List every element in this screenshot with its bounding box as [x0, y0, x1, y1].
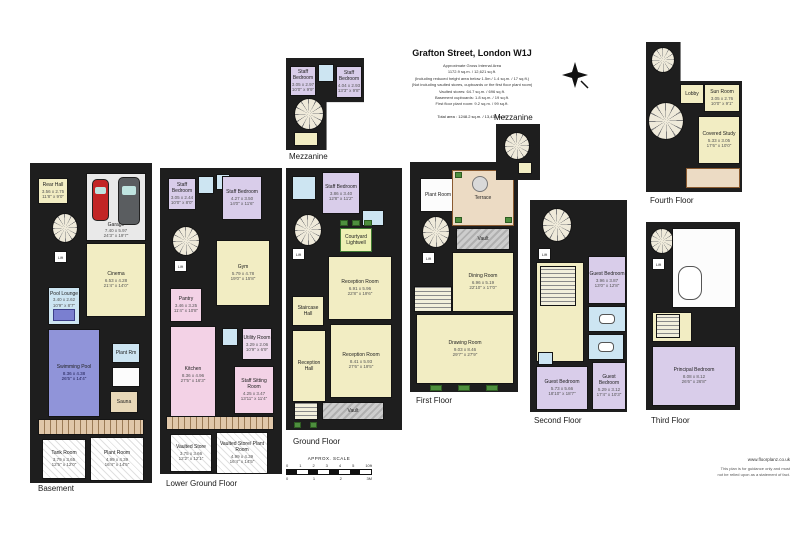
roof-terrace	[686, 168, 740, 188]
page-title: Grafton Street, London W1J	[393, 48, 551, 58]
floor-label-third: Third Floor	[651, 416, 690, 425]
room-vault: Vault	[456, 228, 510, 250]
room-covered-study: Covered Study5.33 x 3.0517'6" x 10'0"	[698, 116, 740, 164]
planter-circle	[472, 176, 488, 192]
room-bathroom	[292, 176, 316, 200]
lgf-corridor-steps	[166, 416, 274, 430]
bathtub	[678, 266, 702, 300]
floor-label-mezzanine-lower: Mezzanine	[289, 152, 328, 161]
room-tank-room: Tank Room3.79 x 3.6512'5" x 12'0"	[42, 439, 86, 479]
room-reception-2: Reception Room8.41 x 5.9327'6" x 19'5"	[330, 324, 392, 398]
title-block: Grafton Street, London W1J Approximate G…	[393, 48, 551, 119]
floorplan-mezzanine-upper	[496, 124, 540, 180]
room-staff-bedroom: Staff Bedroom3.86 x 3.4012'8" x 11'2"	[322, 172, 360, 214]
floor-label-ground: Ground Floor	[293, 437, 340, 446]
lift: Lift	[652, 258, 665, 270]
floorplan-first: Plant Room Terrace Vault Lift Dining Roo…	[410, 162, 518, 392]
area-line: (Not including vaulted stores, cupboards…	[393, 82, 551, 88]
spiral-staircase	[52, 213, 78, 243]
planter	[352, 220, 360, 226]
floor-label-basement: Basement	[38, 484, 74, 493]
scale-bar: APPROX. SCALE 0 1 2 3 4 5 10ft 0 1 2 3M	[286, 456, 372, 481]
scale-bar-title: APPROX. SCALE	[286, 456, 372, 461]
room-plant-room: Plant Room4.99 x 4.3916'4" x 14'5"	[90, 437, 144, 481]
scale-feet-row: 0 1 2 3 4 5 10ft	[286, 463, 372, 468]
floorplan-third: Lift Principal Bedroom8.08 x 8.1226'6" x…	[646, 222, 740, 410]
lift: Lift	[174, 260, 187, 272]
room-shower	[222, 328, 238, 346]
floor-label-second: Second Floor	[534, 416, 582, 425]
scale-metre-row: 0 1 2 3M	[286, 476, 372, 481]
lift: Lift	[292, 248, 305, 260]
planter	[364, 220, 372, 226]
room-plant-room: Plant Room	[420, 178, 456, 212]
lift: Lift	[54, 251, 67, 263]
room-sauna: Sauna	[110, 391, 138, 413]
room-staircase-hall: Staircase Hall	[292, 296, 324, 326]
car-windshield	[95, 187, 106, 194]
room-kitchen: Kitchen8.36 x 4.9627'5" x 16'3"	[170, 326, 216, 424]
floor-label-first: First Floor	[416, 396, 452, 405]
lift: Lift	[538, 248, 551, 260]
room-bathroom	[318, 64, 334, 82]
spiral-staircase	[172, 226, 200, 256]
front-steps	[294, 402, 318, 420]
floor-label-mezzanine-upper: Mezzanine	[494, 113, 533, 122]
floorplan-sheet: Grafton Street, London W1J Approximate G…	[0, 0, 800, 533]
room-courtyard-lightwell: Courtyard Lightwell	[340, 228, 372, 252]
website-link: www.floorplanz.co.uk	[632, 457, 790, 462]
room-guest-bedroom-2: Guest Bedroom5.73 x 5.6618'10" x 18'7"	[536, 366, 588, 410]
floorplan-mezzanine-lower: Staff Bedroom3.05 x 2.9710'0" x 9'9" Sta…	[286, 58, 364, 150]
plunge-pool	[53, 309, 75, 321]
scale-bar-rule	[286, 469, 372, 475]
bathtub	[598, 342, 614, 352]
room-vaulted-store: Vaulted Store3.75 x 3.6612'2" x 12'1"	[170, 434, 212, 472]
room-vaulted-store-plant: Vaulted Store/ Plant Room4.99 x 4.3916'4…	[216, 432, 268, 474]
area-line: First floor plant room: 9.2 sq.m. / 99 s…	[393, 101, 551, 107]
room-shower	[538, 352, 553, 365]
main-staircase	[414, 286, 452, 312]
room-cinema: Cinema6.53 x 4.2821'4" x 14'0"	[86, 243, 146, 317]
spiral-staircase	[651, 47, 675, 73]
room-swimming-pool: Swimming Pool8.36 x 4.3826'5" x 14'4"	[48, 329, 100, 417]
main-staircase	[540, 266, 576, 306]
floor-label-lower-ground: Lower Ground Floor	[166, 479, 237, 488]
grand-spiral-staircase	[648, 102, 684, 140]
car-grey	[118, 177, 140, 225]
room-guest-bedroom-3: Guest Bedroom5.29 x 3.1217'4" x 10'3"	[592, 362, 626, 410]
room-staff-bedroom: Staff Bedroom3.05 x 2.4410'0" x 8'0"	[168, 178, 196, 210]
room-gym: Gym5.79 x 4.7819'0" x 15'8"	[216, 240, 270, 306]
spiral-staircase	[504, 132, 530, 160]
room-sun-room: Sun Room3.05 x 2.7610'0" x 9'1"	[704, 84, 740, 112]
disclaimer: not be relied upon as a statement of fac…	[632, 472, 790, 478]
window-box	[458, 385, 470, 391]
footer: www.floorplanz.co.uk This plan is for gu…	[632, 457, 790, 478]
floorplan-lower-ground: Staff Bedroom3.05 x 2.4410'0" x 8'0" Sta…	[160, 168, 282, 474]
floorplan-ground: Staff Bedroom3.86 x 3.4012'8" x 11'2" Co…	[286, 168, 402, 430]
spiral-staircase	[422, 216, 450, 248]
main-staircase	[656, 314, 680, 338]
floorplan-fourth: Lobby Sun Room3.05 x 2.7610'0" x 9'1" Co…	[646, 42, 742, 192]
room-pool-lounge: Pool Lounge3.40 x 2.6210'9" x 8'7"	[48, 287, 80, 325]
spiral-staircase	[542, 208, 572, 242]
room-shower	[112, 367, 140, 387]
planter	[455, 172, 462, 178]
room-utility: Utility Room3.29 x 2.0610'9" x 6'9"	[242, 328, 272, 360]
room-staff-bedroom: Staff Bedroom4.04 x 2.9313'3" x 9'8"	[336, 66, 362, 98]
room-bathroom	[588, 334, 624, 360]
room-drawing: Drawing Room9.03 x 8.4629'7" x 27'9"	[416, 314, 514, 384]
floorplan-basement: Rear Hall3.56 x 2.7511'8" x 9'0" Garage7…	[30, 163, 152, 483]
planter	[455, 217, 462, 223]
basement-corridor-steps	[38, 419, 144, 435]
car-windshield	[122, 186, 136, 194]
floor-label-fourth: Fourth Floor	[650, 196, 694, 205]
spiral-staircase	[294, 214, 322, 246]
planter	[294, 422, 301, 428]
planter	[340, 220, 348, 226]
mezzanine-landing	[518, 162, 532, 174]
room-reception-1: Reception Room6.91 x 5.9622'8" x 19'6"	[328, 256, 392, 320]
floorplan-second: Lift Guest Bedroom3.96 x 3.8713'0" x 12'…	[530, 200, 627, 412]
room-staff-bedroom: Staff Bedroom3.05 x 2.9710'0" x 9'9"	[290, 66, 316, 96]
compass-icon	[560, 60, 590, 90]
room-lobby: Lobby	[680, 84, 704, 104]
car-red	[92, 179, 109, 221]
spiral-staircase	[650, 228, 674, 254]
lift: Lift	[422, 252, 435, 264]
room-principal-bedroom: Principal Bedroom8.08 x 8.1226'6" x 26'8…	[652, 346, 736, 406]
planter	[505, 217, 512, 223]
room-staff-sitting: Staff Sitting Room4.25 x 3.4713'11" x 11…	[234, 366, 274, 414]
room-dining: Dining Room6.96 x 5.1922'10" x 17'0"	[452, 252, 514, 312]
room-bathroom	[588, 306, 626, 332]
room-staff-bedroom: Staff Bedroom4.27 x 3.5014'0" x 11'6"	[222, 176, 262, 220]
room-rear-hall: Rear Hall3.56 x 2.7511'8" x 9'0"	[38, 178, 68, 204]
room-plant-rm: Plant Rm	[112, 343, 140, 363]
spiral-staircase	[294, 98, 324, 130]
bathtub	[599, 314, 615, 324]
room-guest-bedroom-1: Guest Bedroom3.96 x 3.8713'0" x 12'8"	[588, 256, 626, 304]
room-reception-hall: Reception Hall	[292, 330, 326, 402]
planter	[310, 422, 317, 428]
window-box	[486, 385, 498, 391]
room-bathroom	[198, 176, 214, 194]
window-box	[430, 385, 442, 391]
room-vault: Vault	[322, 402, 384, 420]
mezzanine-landing	[294, 132, 318, 146]
room-pantry: Pantry3.46 x 3.2511'4" x 10'8"	[170, 288, 202, 322]
